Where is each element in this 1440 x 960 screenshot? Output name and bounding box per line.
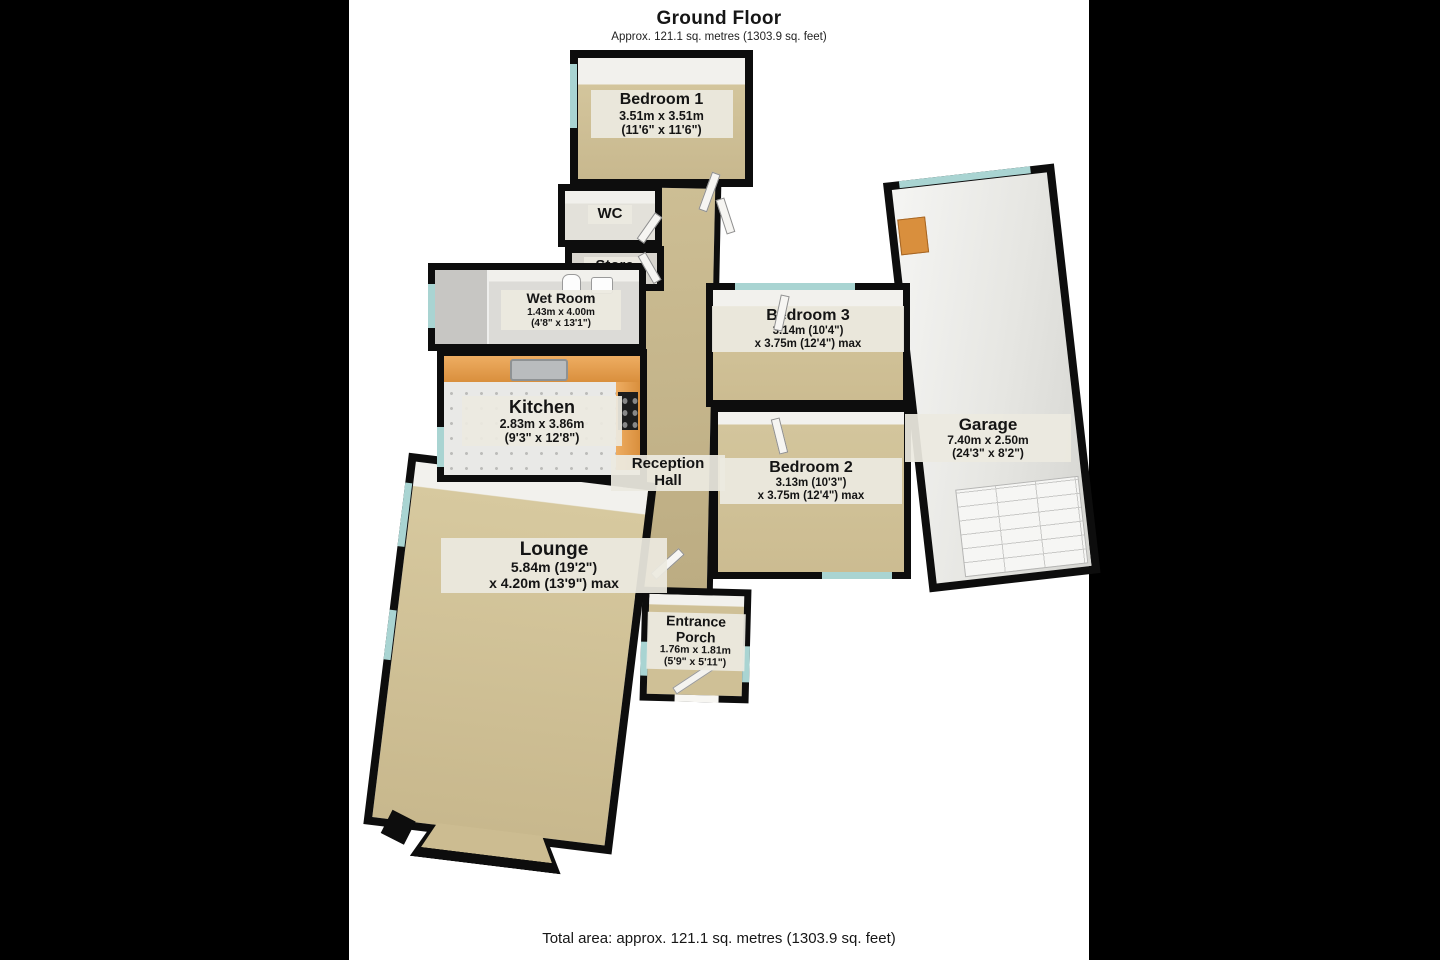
window-icon bbox=[899, 166, 1031, 188]
floor-subtitle: Approx. 121.1 sq. metres (1303.9 sq. fee… bbox=[349, 31, 1089, 43]
floor-title: Ground Floor bbox=[349, 8, 1089, 30]
room-bedroom-2: Bedroom 2 3.13m (10'3") x 3.75m (12'4") … bbox=[711, 405, 911, 579]
room-label-bedroom-3: Bedroom 3 3.14m (10'4") x 3.75m (12'4") … bbox=[712, 306, 904, 352]
room-label-garage: Garage 7.40m x 2.50m (24'3" x 8'2") bbox=[905, 414, 1071, 462]
room-lounge bbox=[363, 453, 657, 855]
front-door-opening bbox=[675, 694, 719, 702]
window-icon bbox=[384, 610, 397, 660]
shower-area bbox=[435, 270, 489, 344]
left-letterbox bbox=[0, 0, 349, 960]
room-label-reception-hall: Reception Hall bbox=[611, 455, 725, 491]
room-bedroom-1: Bedroom 1 3.51m x 3.51m (11'6" x 11'6") bbox=[570, 50, 753, 187]
window-icon bbox=[437, 427, 444, 467]
floorplan-screenshot: Ground Floor Approx. 121.1 sq. metres (1… bbox=[0, 0, 1440, 960]
window-icon bbox=[735, 283, 855, 290]
window-icon bbox=[570, 64, 577, 128]
room-label-kitchen: Kitchen 2.83m x 3.86m (9'3" x 12'8") bbox=[462, 396, 622, 446]
room-entrance-porch: Entrance Porch 1.76m x 1.81m (5'9" x 5'1… bbox=[640, 587, 752, 704]
room-label-bedroom-1: Bedroom 1 3.51m x 3.51m (11'6" x 11'6") bbox=[591, 90, 733, 138]
window-icon bbox=[397, 483, 412, 547]
room-label-entrance-porch: Entrance Porch 1.76m x 1.81m (5'9" x 5'1… bbox=[646, 612, 745, 671]
room-label-lounge: Lounge 5.84m (19'2") x 4.20m (13'9") max bbox=[441, 538, 667, 593]
window-icon bbox=[428, 284, 435, 328]
room-label-bedroom-2: Bedroom 2 3.13m (10'3") x 3.75m (12'4") … bbox=[720, 458, 902, 504]
total-area-text: Total area: approx. 121.1 sq. metres (13… bbox=[349, 930, 1089, 947]
workbench-icon bbox=[897, 216, 929, 255]
room-bedroom-3: Bedroom 3 3.14m (10'4") x 3.75m (12'4") … bbox=[706, 283, 910, 407]
room-label-wet-room: Wet Room 1.43m x 4.00m (4'8" x 13'1") bbox=[501, 290, 621, 330]
room-label-wc: WC bbox=[588, 205, 632, 224]
room-garage bbox=[883, 164, 1101, 593]
window-icon bbox=[822, 572, 892, 579]
wall-notch bbox=[381, 810, 416, 845]
right-letterbox bbox=[1089, 0, 1440, 960]
floorplan-image: Ground Floor Approx. 121.1 sq. metres (1… bbox=[349, 0, 1089, 960]
garage-door-icon bbox=[955, 476, 1088, 577]
room-wet-room: Wet Room 1.43m x 4.00m (4'8" x 13'1") bbox=[428, 263, 646, 351]
kitchen-sink-icon bbox=[510, 359, 568, 381]
